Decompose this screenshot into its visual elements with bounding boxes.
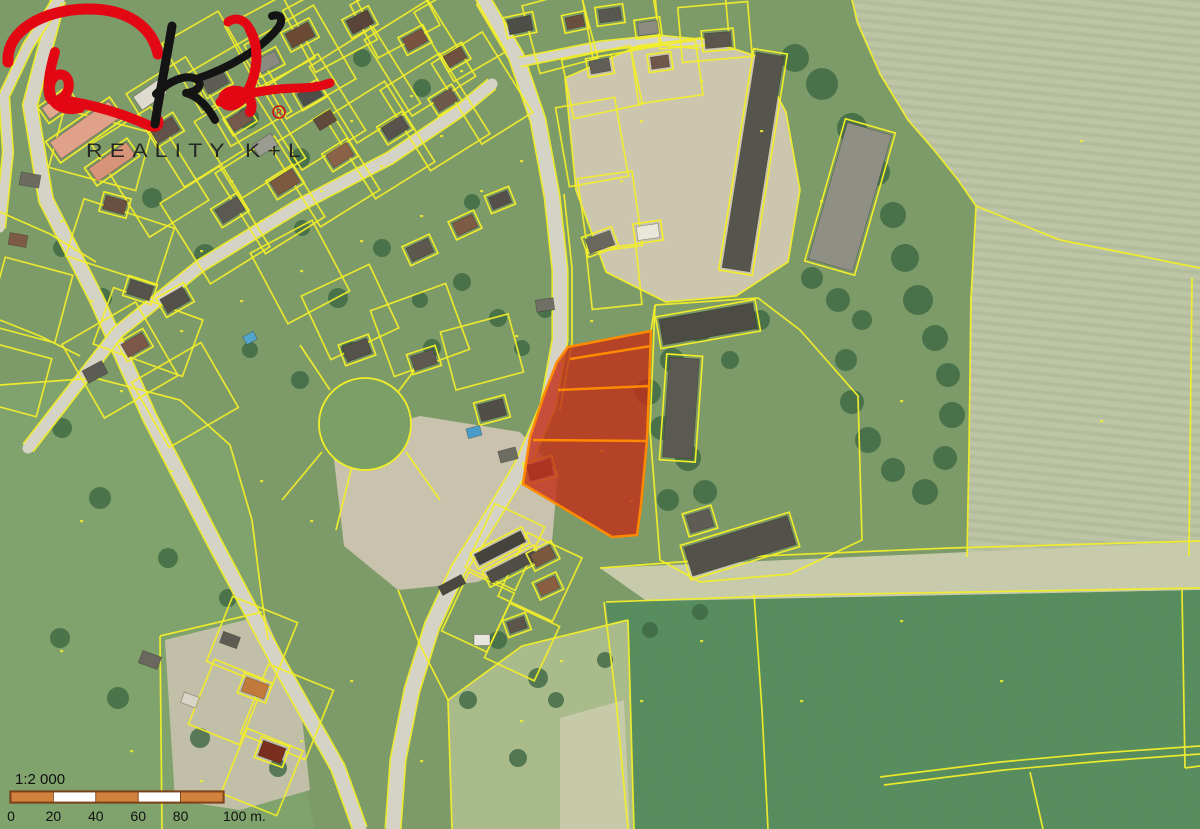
tree-canopy — [939, 402, 965, 428]
tree-canopy — [891, 244, 919, 272]
scale-bar-tick-labels: 020406080100 m. — [7, 808, 266, 824]
scale-bar-tick-label: 0 — [7, 808, 15, 824]
tree-canopy — [933, 446, 957, 470]
scale-bar-segment — [181, 792, 223, 802]
tree-canopy — [464, 194, 480, 210]
tree-canopy — [936, 363, 960, 387]
region-texture — [606, 590, 1200, 829]
tree-canopy — [50, 628, 70, 648]
parcel-number-marker — [820, 200, 823, 202]
parcel-number-marker — [300, 270, 303, 272]
tree-canopy — [826, 288, 850, 312]
parcel-number-marker — [170, 470, 173, 472]
parcel-number-marker — [260, 480, 263, 482]
parcel-number-marker — [200, 250, 203, 252]
scale-bar-segment — [138, 792, 180, 802]
building-roof — [636, 224, 660, 241]
building-roof — [637, 20, 659, 36]
parcel-number-marker — [180, 330, 183, 332]
scale-bar-tick-label: 100 m. — [223, 808, 266, 824]
parcel-number-marker — [560, 660, 563, 662]
parcel-number-marker — [80, 520, 83, 522]
map-viewport[interactable]: R REALITY K+L 1:2 000 020406080100 m. — [0, 0, 1200, 829]
tree-canopy — [880, 202, 906, 228]
parcel-number-marker — [420, 215, 423, 217]
tree-canopy — [835, 349, 857, 371]
parcel-number-marker — [60, 220, 63, 222]
tree-canopy — [801, 267, 823, 289]
tree-canopy — [107, 687, 129, 709]
tree-canopy — [903, 285, 933, 315]
tree-canopy — [693, 480, 717, 504]
parcel-number-marker — [260, 220, 263, 222]
parcel-number-marker — [420, 760, 423, 762]
parcel-number-marker — [900, 400, 903, 402]
tree-canopy — [509, 749, 527, 767]
tree-canopy — [548, 692, 564, 708]
scale-ratio-label: 1:2 000 — [15, 771, 65, 788]
parcel-number-marker — [760, 130, 763, 132]
parcel-number-marker — [460, 70, 463, 72]
scale-bar-segment — [53, 792, 95, 802]
tree-canopy — [459, 691, 477, 709]
tree-canopy — [89, 487, 111, 509]
tree-canopy — [852, 310, 872, 330]
tree-canopy — [721, 351, 739, 369]
building-roof — [474, 635, 490, 646]
parcel-number-marker — [310, 520, 313, 522]
parcel-number-marker — [1100, 420, 1103, 422]
tree-canopy — [373, 239, 391, 257]
parcel-number-marker — [515, 335, 518, 337]
scale-bar-segment — [96, 792, 138, 802]
tree-canopy — [142, 188, 162, 208]
parcel-number-marker — [480, 190, 483, 192]
parcel-number-marker — [520, 160, 523, 162]
parcel-number-marker — [60, 650, 63, 652]
parcel-number-marker — [800, 700, 803, 702]
parcel-number-marker — [440, 135, 443, 137]
parcel-number-marker — [380, 165, 383, 167]
parcel-number-marker — [640, 700, 643, 702]
scale-bar-tick-label: 20 — [46, 808, 62, 824]
parcel-number-marker — [300, 740, 303, 742]
parcel-number-marker — [1000, 680, 1003, 682]
parcel-number-marker — [410, 95, 413, 97]
tree-canopy — [922, 325, 948, 351]
parcel-number-marker — [520, 720, 523, 722]
parcel-number-marker — [350, 680, 353, 682]
scale-bar-segment — [11, 792, 53, 802]
parcel-number-marker — [640, 120, 643, 122]
aerial-cadastral-map[interactable]: R REALITY K+L 1:2 000 020406080100 m. — [0, 0, 1200, 829]
round-parcel — [319, 378, 411, 470]
scale-bar-tick-label: 80 — [173, 808, 189, 824]
registered-trademark-letter: R — [276, 108, 282, 117]
parcel-number-marker — [130, 750, 133, 752]
scale-bar-tick-label: 40 — [88, 808, 104, 824]
building-roof — [598, 7, 622, 23]
parcel-number-marker — [590, 320, 593, 322]
parcel-number-marker — [320, 190, 323, 192]
tree-canopy — [158, 548, 178, 568]
tree-canopy — [840, 390, 864, 414]
parcel-number-marker — [620, 180, 623, 182]
parcel-number-marker — [1080, 140, 1083, 142]
building-roof — [535, 298, 554, 312]
parcel-number-marker — [700, 80, 703, 82]
logo-wordmark: REALITY K+L — [86, 141, 308, 162]
tree-canopy — [692, 604, 708, 620]
tree-canopy — [881, 458, 905, 482]
parcel-number-marker — [230, 180, 233, 182]
tree-canopy — [242, 342, 258, 358]
tree-canopy — [912, 479, 938, 505]
tree-canopy — [453, 273, 471, 291]
parcel-number-marker — [120, 390, 123, 392]
tree-canopy — [291, 371, 309, 389]
tree-canopy — [642, 622, 658, 638]
building-roof — [704, 31, 731, 48]
parcel-number-marker — [360, 240, 363, 242]
scale-bar-tick-label: 60 — [130, 808, 146, 824]
parcel-number-marker — [350, 120, 353, 122]
tree-canopy — [657, 489, 679, 511]
scale-bar-segments — [10, 791, 224, 803]
region-bottom-center-pale-wedge — [560, 700, 630, 829]
parcel-number-marker — [200, 780, 203, 782]
highlighted-parcel-division-line — [533, 440, 647, 441]
tree-canopy — [806, 68, 838, 100]
parcel-number-marker — [90, 300, 93, 302]
parcel-number-marker — [240, 300, 243, 302]
parcel-number-marker — [900, 620, 903, 622]
parcel-number-marker — [700, 640, 703, 642]
building-roof — [650, 55, 669, 69]
